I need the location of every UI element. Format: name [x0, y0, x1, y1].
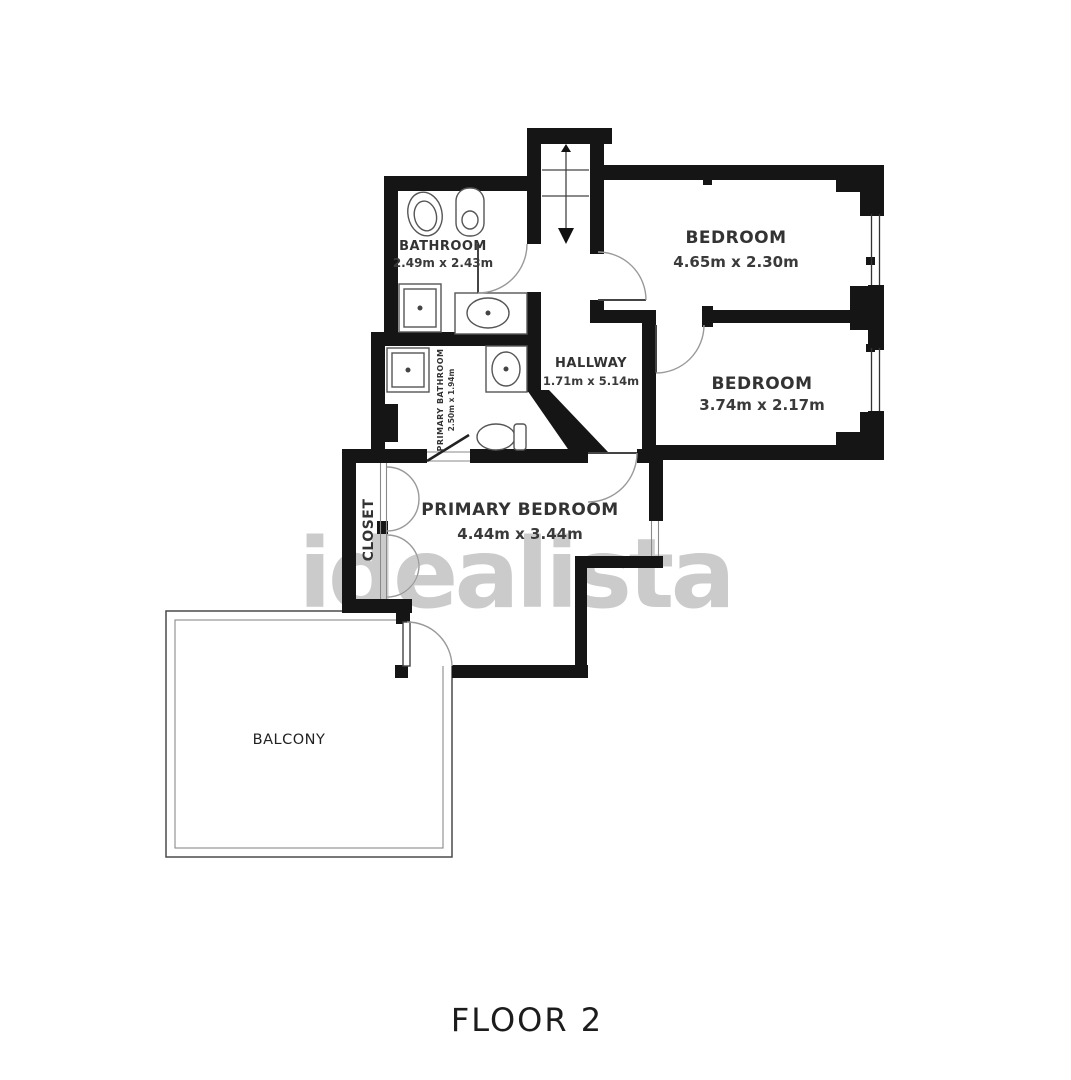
bathroom-label: BATHROOM [399, 239, 487, 254]
window-cap [868, 285, 884, 291]
floor-title: FLOOR 2 [451, 1001, 603, 1039]
bedroom2-dimensions: 3.74m x 2.17m [699, 396, 824, 414]
wall-tick [866, 257, 875, 265]
primary-bathroom-fixtures [387, 346, 527, 450]
window-bedroom1 [868, 208, 884, 291]
stairs-down-arrow-icon [558, 228, 574, 244]
wall [371, 404, 398, 442]
shower-icon [387, 348, 429, 392]
primary-bathroom-door [427, 435, 470, 461]
wall-tick [702, 306, 713, 311]
watermark: idealista [299, 518, 736, 630]
bidet-icon [456, 188, 484, 236]
wall [395, 665, 408, 678]
wall [702, 310, 852, 323]
wall [642, 310, 656, 460]
wall [470, 449, 588, 463]
floor-plan-page: BATHROOM 2.49m x 2.43m BEDROOM 4.65m x 2… [0, 0, 1071, 1080]
wall-diagonal [527, 390, 608, 452]
primary-bathroom-dimensions: 2.50m x 1.94m [447, 368, 456, 431]
hallway-label: HALLWAY [555, 356, 627, 371]
wall-tick [703, 178, 712, 185]
bedroom2-door [656, 325, 704, 373]
wall [527, 128, 612, 144]
toilet-icon [404, 189, 446, 239]
wall [836, 165, 884, 192]
bedroom2-label: BEDROOM [711, 374, 812, 394]
primary-bathroom-label: PRIMARY BATHROOM [436, 349, 445, 452]
wall [598, 165, 855, 180]
window-cap [868, 411, 884, 417]
stairs-up-arrow-icon [561, 144, 571, 152]
wall [850, 286, 884, 330]
wall [649, 463, 663, 521]
wall [590, 144, 604, 254]
wall-tick [419, 449, 427, 463]
bedroom1-dimensions: 4.65m x 2.30m [673, 253, 798, 271]
toilet-icon [477, 424, 526, 450]
primary-bedroom-label: PRIMARY BEDROOM [421, 500, 618, 520]
stairs [542, 144, 589, 244]
bathroom-dimensions: 2.49m x 2.43m [393, 256, 493, 270]
wall [342, 449, 425, 463]
shower-icon [399, 284, 441, 332]
wall [637, 449, 663, 463]
floor-plan-drawing: BATHROOM 2.49m x 2.43m BEDROOM 4.65m x 2… [0, 0, 1071, 1080]
bedroom1-label: BEDROOM [685, 228, 786, 248]
primary-bedroom-door [588, 453, 637, 502]
wall [642, 445, 844, 460]
window-cap [868, 208, 884, 215]
wall [384, 176, 527, 191]
sink-icon [455, 293, 527, 334]
wall [590, 300, 604, 323]
hallway-dimensions: 1.71m x 5.14m [543, 374, 639, 388]
window-bedroom2 [868, 343, 884, 417]
window-cap [868, 343, 884, 349]
balcony-label: BALCONY [253, 732, 326, 748]
wall [452, 665, 588, 678]
wall [527, 144, 541, 244]
sink-icon [486, 346, 527, 392]
bedroom1-door [598, 252, 646, 300]
